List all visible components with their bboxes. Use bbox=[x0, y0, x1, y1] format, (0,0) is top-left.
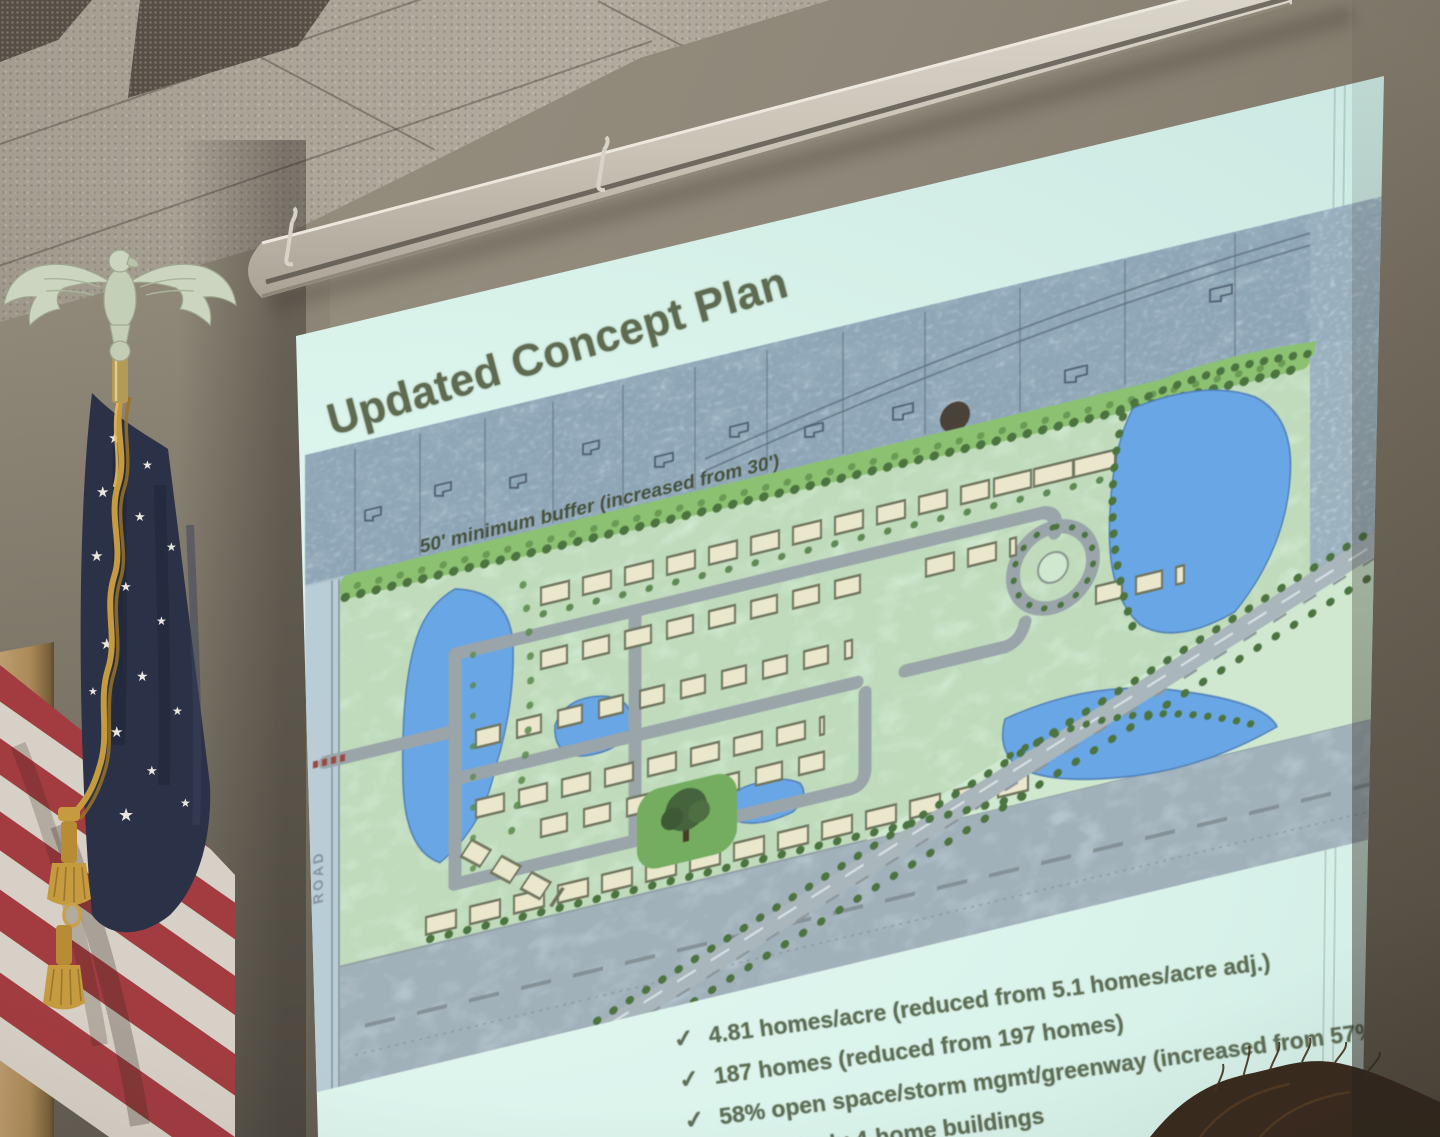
svg-text:★: ★ bbox=[166, 540, 177, 554]
svg-text:★: ★ bbox=[90, 547, 103, 565]
svg-text:★: ★ bbox=[88, 685, 98, 698]
svg-text:★: ★ bbox=[110, 723, 123, 741]
svg-text:★: ★ bbox=[96, 483, 109, 501]
svg-text:★: ★ bbox=[118, 805, 134, 826]
svg-text:★: ★ bbox=[136, 669, 149, 685]
svg-text:★: ★ bbox=[172, 704, 183, 718]
svg-text:★: ★ bbox=[180, 796, 191, 810]
svg-text:★: ★ bbox=[134, 510, 146, 525]
road-label: ROAD bbox=[311, 849, 327, 906]
meeting-room-scene: ROAD bbox=[0, 0, 1440, 1137]
svg-text:★: ★ bbox=[120, 580, 132, 595]
svg-text:★: ★ bbox=[142, 458, 153, 472]
svg-text:★: ★ bbox=[146, 764, 158, 779]
person-hair bbox=[0, 1030, 1440, 1137]
flag-canton: ★★ ★★ ★★ ★★ ★★ ★★ ★★ ★★ bbox=[81, 393, 211, 932]
svg-text:★: ★ bbox=[156, 614, 167, 628]
edge-road-corridor: ROAD bbox=[305, 575, 345, 1095]
eagle-finial-icon bbox=[4, 250, 236, 361]
american-flag: ★★ ★★ ★★ ★★ ★★ ★★ ★★ ★★ bbox=[0, 225, 250, 1137]
